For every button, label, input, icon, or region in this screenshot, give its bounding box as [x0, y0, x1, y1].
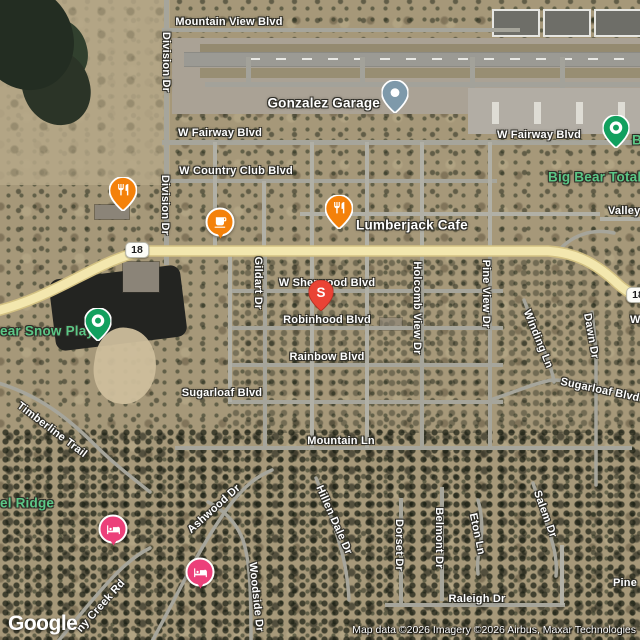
street-label-w-partial: W	[630, 314, 640, 326]
street-label-division-mid: Division Dr	[159, 175, 171, 235]
highway-18-shield: 18	[125, 242, 149, 258]
red-pin-icon: S	[309, 280, 334, 311]
search-pin-letter: S	[317, 285, 326, 300]
restaurant-pin-icon	[325, 195, 353, 229]
poi-label-snow-play[interactable]: ear Snow Play	[0, 324, 94, 339]
coffee-cup-icon	[213, 215, 227, 229]
poi-label-big-bear-total[interactable]: Big Bear Total	[548, 170, 640, 185]
street-label-sugarloaf-left: Sugarloaf Blvd	[182, 387, 262, 399]
gonzalez-garage-pin[interactable]	[382, 80, 409, 118]
street-label-gildart: Gildart Dr	[252, 257, 264, 310]
map-attribution: Map data ©2026 Imagery ©2026 Airbus, Max…	[352, 624, 636, 636]
street-label-belmont: Belmont Dr	[433, 507, 445, 568]
street-label-raleigh: Raleigh Dr	[448, 593, 505, 605]
bed-icon	[193, 565, 207, 579]
highway-18-shield: 18	[626, 287, 640, 303]
poi-pin-icon	[85, 308, 112, 341]
satellite-map-canvas[interactable]: Mountain View Blvd Division Dr W Fairway…	[0, 0, 640, 640]
big-bear-total-pin[interactable]	[603, 115, 630, 153]
bed-icon	[106, 522, 120, 536]
business-pin-icon	[382, 80, 409, 113]
road-timberline	[0, 382, 150, 492]
street-label-pine-partial: Pine	[613, 577, 637, 589]
street-label-pine-view: Pine View Dr	[480, 260, 492, 329]
lumberjack-cafe-pin[interactable]	[325, 195, 353, 234]
google-logo[interactable]: Google	[8, 612, 77, 636]
cafe-pin[interactable]	[206, 208, 235, 237]
street-label-mountain-ln: Mountain Ln	[307, 435, 375, 447]
dot-icon	[391, 88, 400, 97]
street-label-holcomb: Holcomb View Dr	[411, 261, 423, 354]
street-label-rainbow: Rainbow Blvd	[289, 351, 364, 363]
hotel-pin[interactable]	[99, 515, 128, 544]
poi-pin-icon	[603, 115, 630, 148]
poi-label-lumberjack-cafe[interactable]: Lumberjack Cafe	[356, 218, 468, 233]
poi-label-big-bear-partial[interactable]: B	[632, 133, 640, 148]
restaurant-pin-icon	[109, 177, 137, 211]
street-label-country-club: W Country Club Blvd	[179, 165, 293, 177]
poi-label-el-ridge[interactable]: el Ridge	[0, 496, 54, 511]
street-label-mountain-view: Mountain View Blvd	[175, 16, 282, 28]
street-label-dorset: Dorset Dr	[393, 519, 405, 571]
street-label-fairway-right: W Fairway Blvd	[497, 129, 581, 141]
poi-label-gonzalez-garage[interactable]: Gonzalez Garage	[267, 96, 380, 111]
street-label-fairway-left: W Fairway Blvd	[178, 127, 262, 139]
street-label-valley: Valley	[608, 205, 640, 217]
street-label-division-top: Division Dr	[160, 32, 172, 92]
hotel-pin[interactable]	[186, 558, 215, 587]
snow-play-pin[interactable]	[85, 308, 112, 346]
search-result-pin[interactable]: S	[309, 280, 334, 316]
restaurant-pin[interactable]	[109, 177, 137, 216]
